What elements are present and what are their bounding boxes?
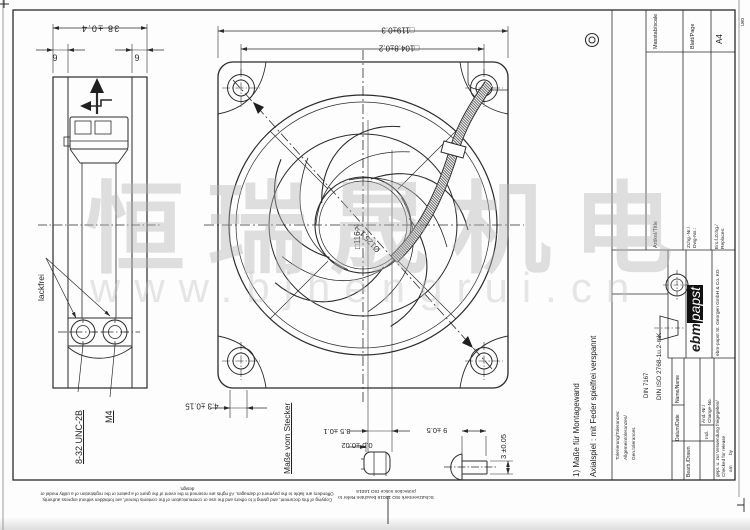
titleblock-dwgno-label-1: Zchg.-Nr./ — [687, 227, 692, 248]
company-logo-papst: papst — [687, 285, 703, 323]
titleblock-replaces-label-1: Ers.f.Zchg./ — [715, 224, 720, 249]
titleblock-drawn-label: Bearb./Drawn — [687, 446, 692, 477]
company-logo: ebmpapst — [688, 285, 703, 352]
dim-pin-diameter: 3 ±0.05 — [500, 434, 508, 459]
dim-plug-lip: 0.5 ±0.02 — [330, 441, 384, 449]
connector-detail — [361, 452, 496, 480]
company-name: ebm-papst St. Georgen GmbH & Co. KG — [716, 269, 721, 356]
dim-front-holes: □104.8±0.2 — [366, 43, 432, 51]
drawing-sheet: 恒瑞晟机电 www.bjhengrui.cn 38 ±0.4 6 6 □119±… — [0, 0, 750, 530]
dimension-lines — [36, 24, 513, 474]
dim-flange-left: 6 — [48, 52, 62, 61]
titleblock-changeno-label-2: Change-No. — [708, 398, 713, 423]
dim-plug-diameter: 8.5 ±0.1 — [310, 427, 364, 435]
footnote-axial-play: Axialspiel : mit Feder spielfrei verspan… — [590, 336, 598, 477]
datum-symbol — [586, 34, 599, 47]
titleblock-replaces-label-2: Replaces: — [721, 228, 726, 249]
titleblock-scale-label: Masstab/scale — [654, 14, 660, 49]
dim-cutout-square: □116 ¹) — [354, 224, 362, 249]
titleblock-tolerance-value-2: DIN ISO 2768-1u.2-mK — [657, 333, 664, 400]
titleblock-tolerance-value-1: DIN 7167 — [644, 373, 650, 398]
protection-note: Schutzvermerk ISO 16016 beachten Refer t… — [330, 487, 442, 499]
label-plug-title: Maße vom Stecker — [283, 403, 292, 474]
titleblock-article-label: Artikel/Title — [654, 221, 660, 248]
projection-symbol — [654, 270, 691, 340]
sheet-edge-initials: uvo — [741, 18, 746, 26]
label-paint-free: lackfrei — [37, 274, 46, 301]
drawing-line-art — [0, 0, 750, 530]
titleblock-tolerance-label-1: Tolerierung/Tolerances: — [616, 410, 621, 460]
titleblock-release-label-2: Checked for release — [722, 436, 727, 477]
label-thread-unc: 8-32 UNC-2B — [75, 410, 84, 464]
company-logo-ebm: ebm — [687, 323, 703, 352]
fan-front-view — [204, 50, 524, 452]
dim-front-outer: □119±0.3 — [367, 25, 429, 33]
copyright-note: Copying of this document, and giving it … — [38, 486, 336, 503]
footnote-mounting-wall: 1) Maße für Montagewand — [573, 383, 581, 477]
fan-side-view — [38, 77, 162, 397]
titleblock-tolerance-label-3: Gen.tolerances — [632, 427, 637, 460]
dim-pin-length: 9 ±0.5 — [416, 426, 458, 434]
dim-flange-right: 6 — [130, 52, 144, 61]
titleblock-sheet-label: Blatt/Page — [691, 24, 697, 49]
titleblock-tolerance-label-2: Allgemeintoleranzen/ — [624, 415, 629, 460]
dim-side-width: 38 ±0.4 — [60, 23, 140, 32]
titleblock-name-label: Name/Name — [676, 375, 681, 403]
label-thread-m4: M4 — [105, 410, 114, 423]
titleblock-date-label: Datum/Date — [676, 414, 681, 441]
dim-plate-thickness: 4.3 ±0.15 — [170, 401, 234, 409]
titleblock-release-by-label: by — [729, 450, 734, 455]
protection-note-de: Schutzvermerk ISO 16016 beachten — [357, 494, 434, 499]
titleblock-dwgno-label-2: Dwg-No.: — [693, 228, 698, 248]
titleblock-index-label: Ind. — [705, 431, 710, 439]
titleblock-format-value: A4 — [716, 34, 724, 44]
titleblock-release-am-label: am — [729, 465, 734, 472]
